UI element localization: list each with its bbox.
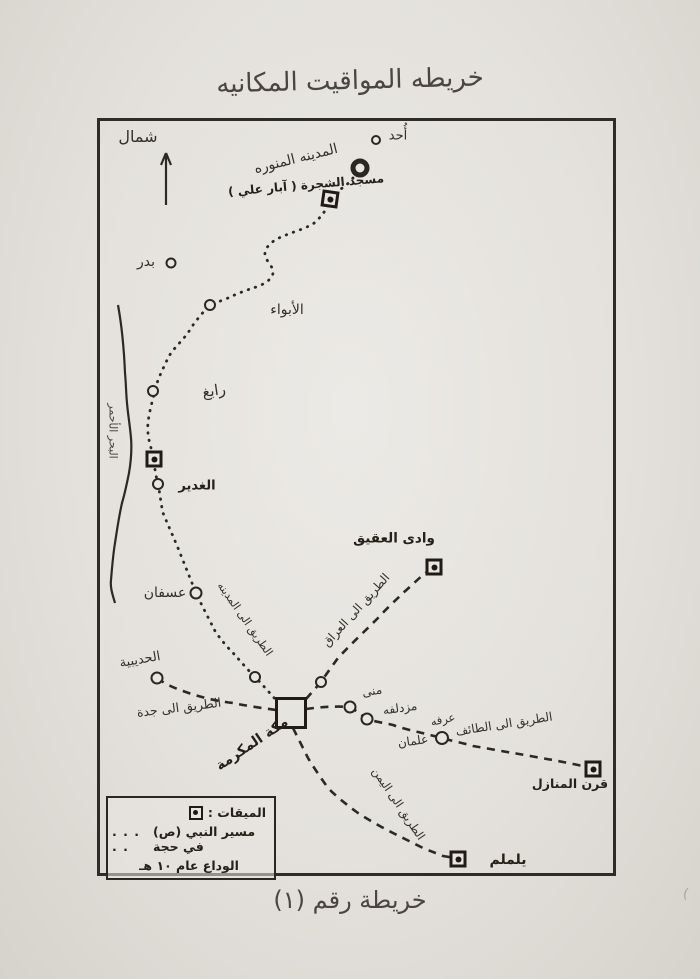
legend-route-label-2: الوداع عام ١٠ هـ: [139, 858, 239, 873]
town-circle-hudaybiyyah: [151, 672, 164, 685]
miqat-square-masjid-shajarah: [320, 189, 339, 208]
town-circle-uhud: [371, 135, 381, 145]
legend-row-route: . . . . . مسير النبي (ص) في حجة: [112, 824, 266, 854]
label-wadi-aqiq: وادى العقيق: [353, 532, 435, 546]
label-yalamlam: يلملم: [489, 853, 526, 867]
map-frame: شمال أُحد المدينه المنوره مسجد الشجرة ( …: [97, 118, 616, 876]
legend-miqat-label: : الميقات: [208, 805, 266, 820]
legend-row-route2: الوداع عام ١٠ هـ: [112, 858, 266, 873]
map-title: خريطه المواقيت المكانيه: [0, 57, 700, 105]
road-to-yemen-path: [293, 728, 455, 858]
miqat-legend-icon: [189, 806, 203, 820]
town-circle-usfan: [190, 587, 203, 600]
legend-box: : الميقات . . . . . مسير النبي (ص) في حج…: [106, 796, 276, 880]
label-usfan: عسفان: [144, 586, 186, 600]
miqat-square-wadi-aqiq: [426, 559, 443, 576]
north-arrow-icon: [161, 153, 171, 205]
north-label: شمال: [118, 129, 157, 145]
town-circle-unlabeled-madinah-road: [249, 671, 261, 683]
town-circle-mina: [344, 701, 357, 714]
label-ghadir: الغدير: [178, 480, 215, 493]
label-rabigh: رابغ: [201, 382, 226, 400]
legend-route-label: مسير النبي (ص) في حجة: [153, 824, 266, 854]
label-mina: منى: [361, 683, 383, 698]
label-badr: بدر: [137, 255, 155, 269]
legend-row-miqat: : الميقات: [112, 805, 266, 820]
miqat-square-yalamlam: [450, 851, 467, 868]
dotted-route-icon: . . . . .: [112, 824, 148, 854]
miqat-square-juhfah: [146, 451, 163, 468]
town-circle-badr: [166, 258, 177, 269]
map-caption: خريطة رقم (١): [0, 886, 700, 914]
label-uhud: أُحد: [389, 130, 407, 143]
town-circle-ghadir: [152, 478, 164, 490]
town-circle-muzdalifah: [361, 713, 374, 726]
label-red-sea: البحر الأحمر: [108, 403, 119, 458]
town-circle-rabigh: [147, 385, 159, 397]
routes-layer: [100, 121, 613, 873]
town-circle-abwa: [204, 299, 216, 311]
scanned-page: خريطه المواقيت المكانيه شمال: [0, 0, 700, 979]
town-circle-unlabeled-iraq-road: [315, 676, 327, 688]
town-circle-arafah: [435, 731, 449, 745]
label-qarn-manazil: قرن المنازل: [532, 778, 608, 791]
label-abwa: الأبواء: [270, 303, 303, 317]
